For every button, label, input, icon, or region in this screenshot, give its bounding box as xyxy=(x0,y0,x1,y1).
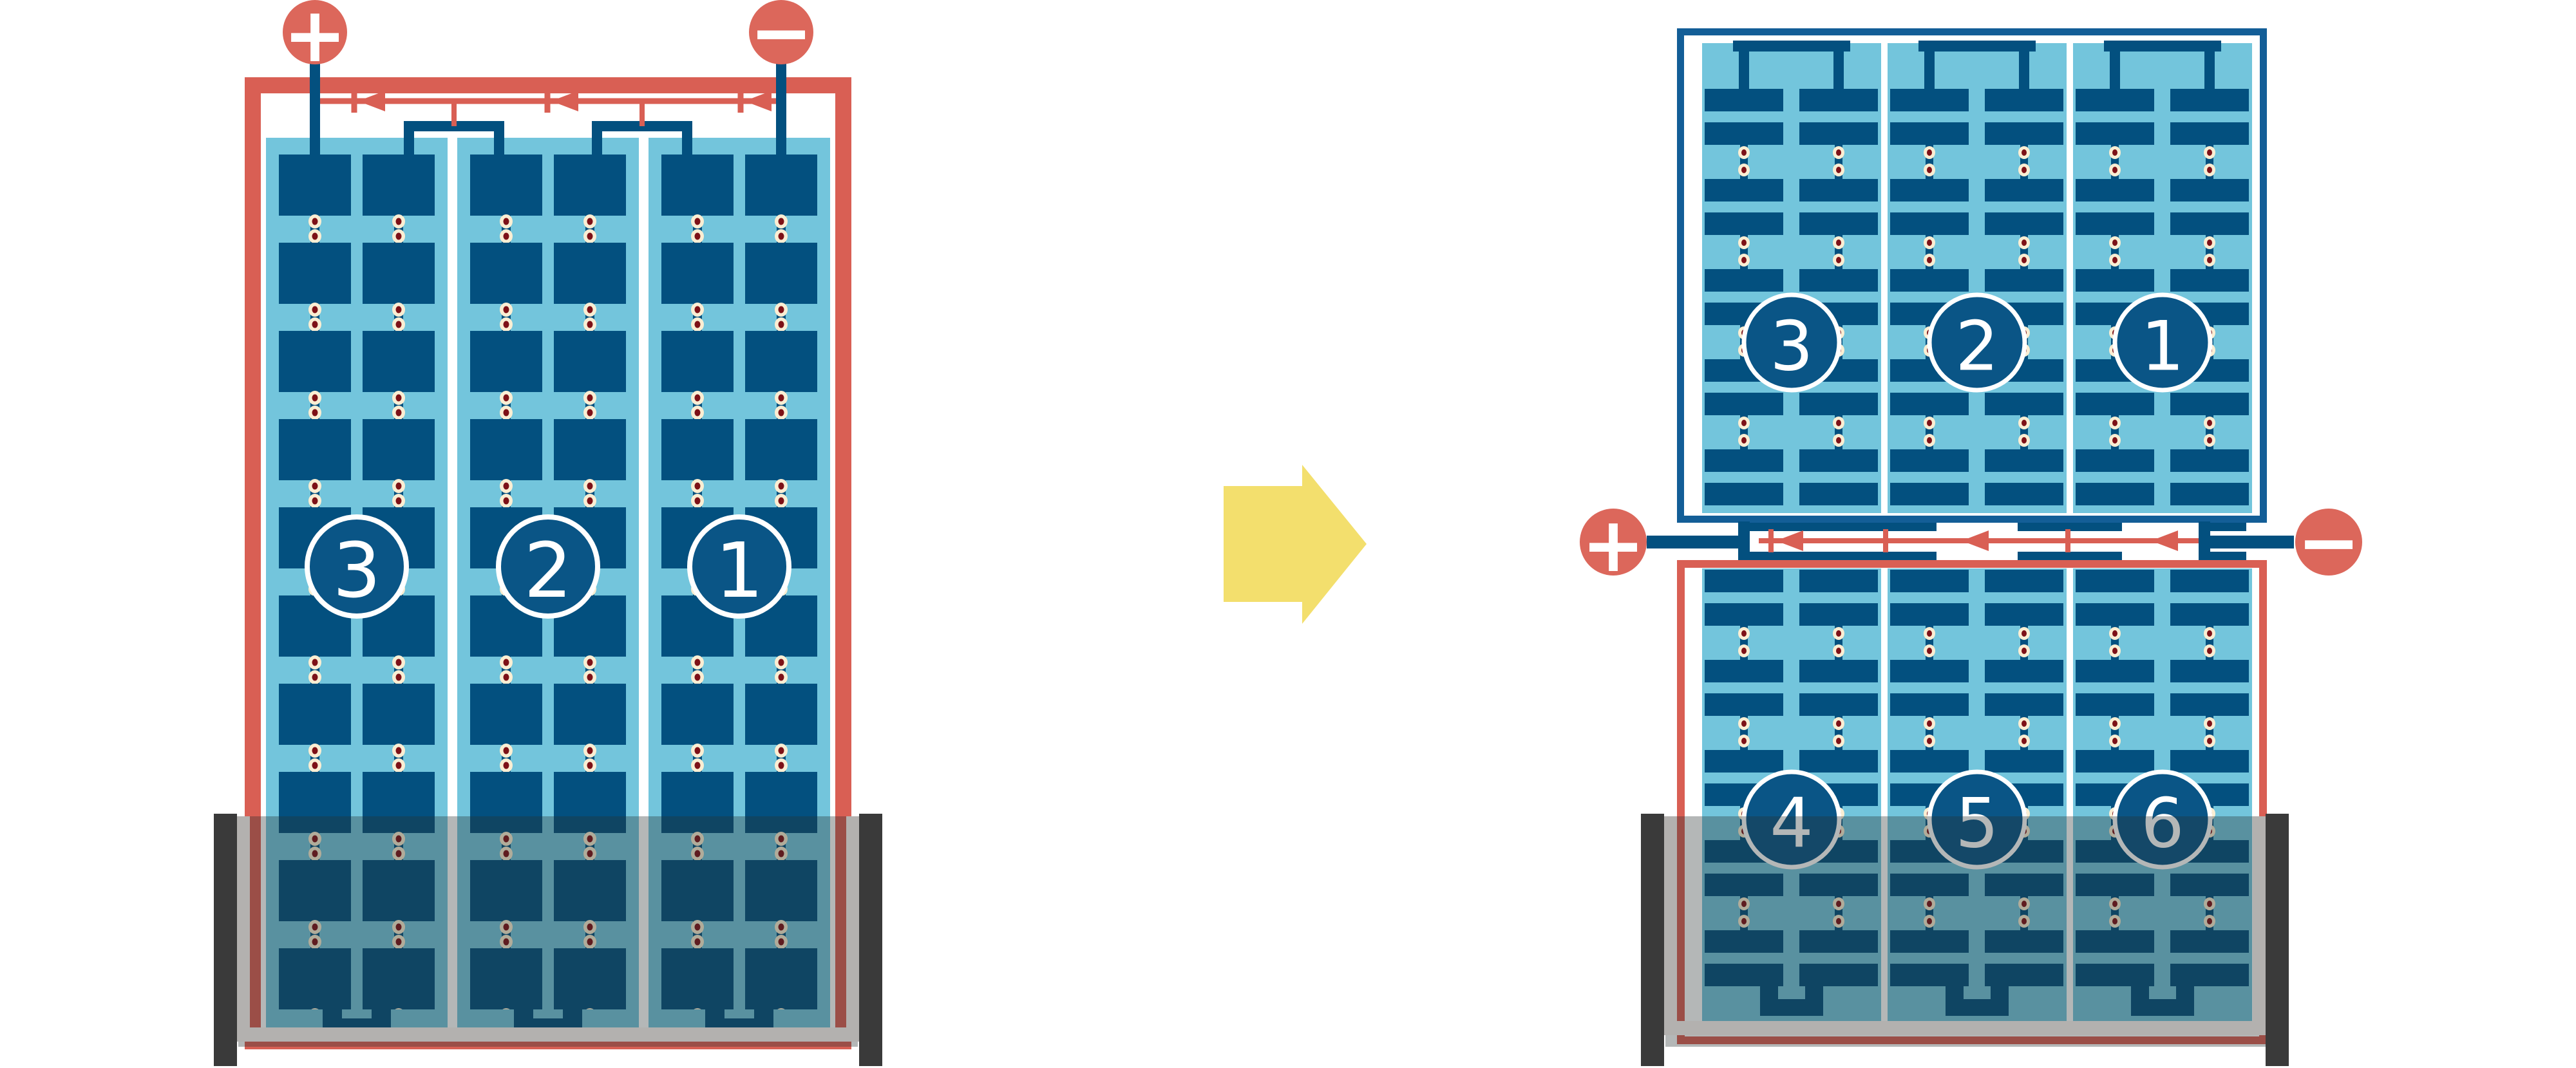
left-container-case xyxy=(214,814,882,1066)
stack-negative-terminal: − xyxy=(2295,498,2362,586)
positive-terminal: + xyxy=(283,0,347,79)
right-bottom-unit: 4 5 6 xyxy=(1641,564,2289,1066)
case-wall xyxy=(237,816,250,1035)
cell-number: 2 xyxy=(1955,307,1998,386)
case-side-bar xyxy=(214,814,237,1066)
diagram-stage: + − 3 2 1 xyxy=(0,0,2576,1068)
negative-terminal: − xyxy=(749,0,813,77)
cell-number: 3 xyxy=(1770,307,1813,386)
case-floor xyxy=(237,1027,859,1042)
cell-separator xyxy=(1881,43,1888,513)
case-overlay xyxy=(1665,816,2278,1047)
transform-arrow-icon xyxy=(1224,465,1367,624)
right-container-case xyxy=(1641,814,2289,1066)
cell-number-badges: 3 2 1 xyxy=(307,517,789,616)
case-wall xyxy=(2253,816,2266,1035)
plus-icon: + xyxy=(1582,500,1645,589)
minus-icon: − xyxy=(750,0,813,77)
case-floor xyxy=(1664,1021,2266,1035)
stack-positive-terminal: + xyxy=(1580,500,1647,589)
case-wall xyxy=(1664,816,1677,1035)
cell-number: 2 xyxy=(524,526,572,615)
case-overlay xyxy=(238,816,858,1047)
terminal-riser xyxy=(2199,521,2210,563)
positive-terminal-stem xyxy=(1647,536,1743,548)
right-top-unit: 3 2 1 xyxy=(1681,32,2264,520)
case-side-bar xyxy=(2266,814,2289,1066)
case-side-bar xyxy=(859,814,882,1066)
cell-number: 1 xyxy=(2141,307,2184,386)
case-side-bar xyxy=(1641,814,1664,1066)
right-battery-stack: 3 2 1 + xyxy=(1580,32,2362,1067)
top-cell-number-badges: 3 2 1 xyxy=(1744,295,2210,390)
cell-number: 1 xyxy=(715,526,763,615)
left-battery-unit: + − 3 2 1 xyxy=(214,0,882,1066)
plus-icon: + xyxy=(283,0,347,79)
battery-diagram-svg: + − 3 2 1 xyxy=(0,0,2576,1068)
cell-separator xyxy=(2067,43,2073,513)
minus-icon: − xyxy=(2297,498,2361,586)
negative-terminal-stem xyxy=(2210,536,2294,548)
case-wall xyxy=(846,816,859,1035)
cell-number: 3 xyxy=(332,526,381,615)
